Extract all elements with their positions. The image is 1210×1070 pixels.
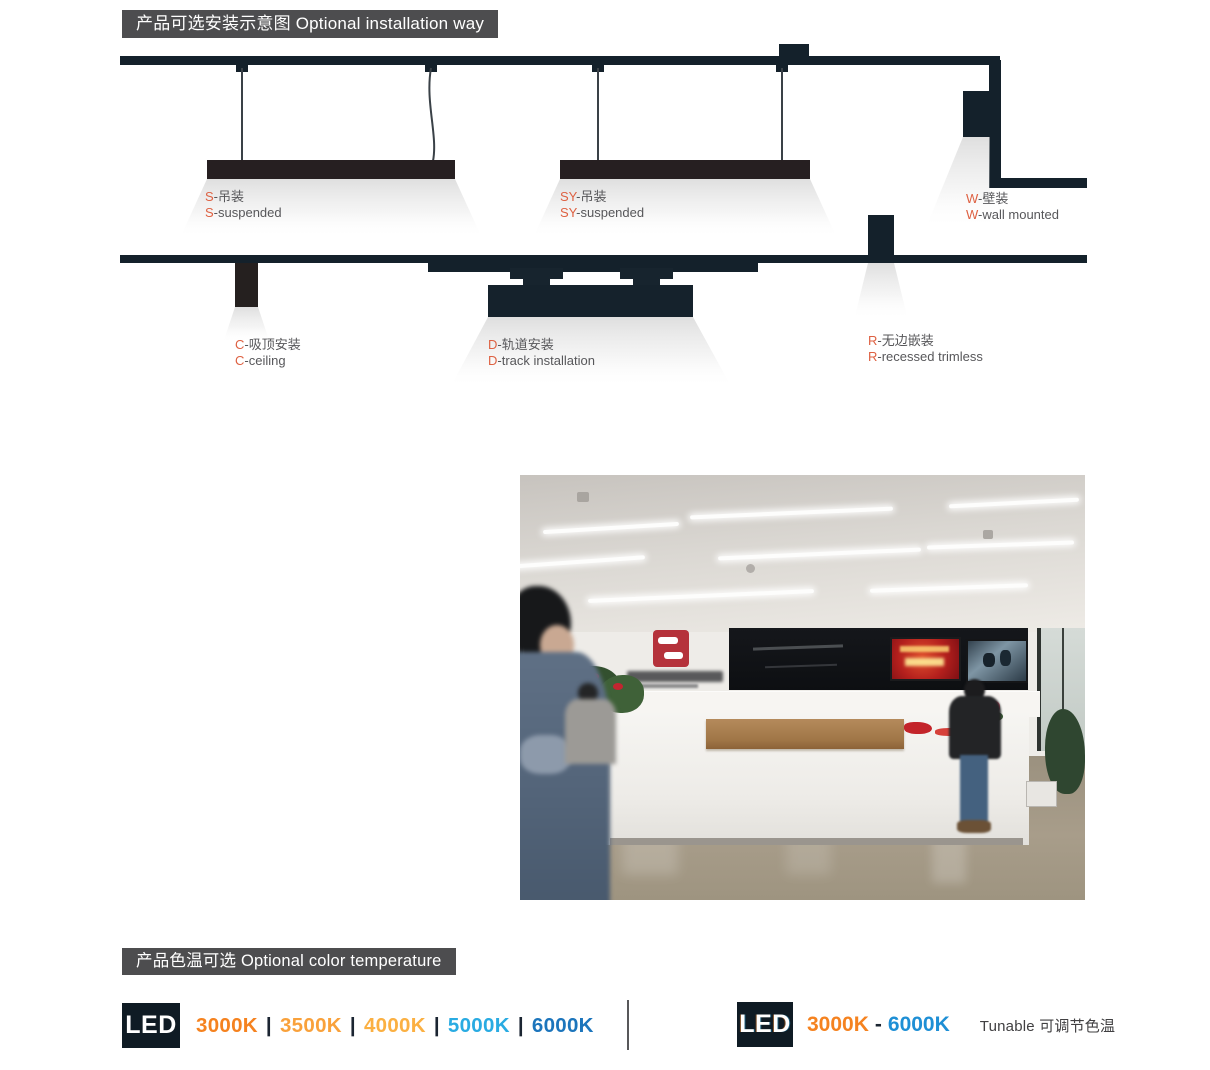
label-c-ceiling: C-吸顶安装 C-ceiling <box>235 337 301 368</box>
tv-screen-red <box>890 637 961 682</box>
fixture-s-suspended <box>207 160 455 179</box>
label-d-track: D-轨道安装 D-track installation <box>488 337 595 368</box>
fixture-w-wall <box>963 91 990 137</box>
ceiling-vent <box>577 492 589 502</box>
temp-option-5000k: 5000K <box>448 1014 510 1037</box>
person-left-background <box>565 683 616 764</box>
label-sy-suspended: SY-吊装 SY-suspended <box>560 189 644 220</box>
track-adapter <box>510 268 563 279</box>
power-cord <box>429 68 434 161</box>
ceiling-vent <box>983 530 993 539</box>
wall-bar <box>989 60 1001 188</box>
sign-text-blur <box>627 671 723 682</box>
temp-option-6000k: 6000K <box>532 1014 594 1037</box>
fixture-d-track <box>488 285 693 317</box>
temp-option-3000k: 3000K <box>196 1014 258 1037</box>
screen-figure <box>983 653 995 667</box>
desk-wood-accent <box>706 719 904 749</box>
fixture-c-ceiling <box>235 263 258 307</box>
label-r-recessed: R-无边嵌装 R-recessed trimless <box>868 333 983 364</box>
tunable-from: 3000K <box>807 1013 869 1036</box>
color-temperature-section-header: 产品色温可选 Optional color temperature <box>122 948 456 975</box>
option-separator: | <box>350 1014 356 1037</box>
person-jeans <box>960 755 989 821</box>
ceiling-bar-top <box>120 56 1000 65</box>
tunable-to: 6000K <box>888 1013 950 1036</box>
fixture-sy-suspended <box>560 160 810 179</box>
temp-option-4000k: 4000K <box>364 1014 426 1037</box>
wall-floor-step <box>999 178 1087 188</box>
ceiling-junction-box <box>779 44 809 57</box>
company-logo <box>653 630 689 667</box>
tv-screen-blue <box>966 639 1028 684</box>
white-box <box>1026 781 1057 807</box>
fixture-r-recessed <box>868 215 894 259</box>
person-right <box>944 679 1006 845</box>
screen-text-glow <box>905 658 944 666</box>
temp-option-3500k: 3500K <box>280 1014 342 1037</box>
label-w-wall-mounted: W-壁装 W-wall mounted <box>966 191 1059 222</box>
track-adapter <box>620 268 673 279</box>
track-bar <box>428 263 758 272</box>
screen-figure <box>1000 650 1010 666</box>
logo-glyph <box>664 652 684 659</box>
label-s-suspended: S-吊装 S-suspended <box>205 189 282 220</box>
track-adapter-foot <box>633 279 660 285</box>
option-separator: | <box>266 1014 272 1037</box>
screen-text-glow <box>900 646 949 652</box>
application-photo <box>520 475 1085 900</box>
band-reflection <box>765 664 837 669</box>
vertical-divider <box>627 1000 629 1050</box>
led-badge: LED <box>122 1003 180 1048</box>
person-jacket <box>949 696 1001 759</box>
ceiling-bar-bottom <box>120 255 1087 263</box>
light-beam-r <box>854 263 908 320</box>
person-body <box>565 699 616 764</box>
range-dash: - <box>875 1013 882 1036</box>
tunable-note: Tunable 可调节色温 <box>980 1018 1115 1035</box>
person-shoes <box>957 820 991 833</box>
track-adapter-foot <box>523 279 550 285</box>
logo-glyph <box>658 637 678 644</box>
jacket-highlight <box>520 735 571 775</box>
led-badge-tunable: LED <box>737 1002 793 1047</box>
option-separator: | <box>518 1014 524 1037</box>
datasheet-page: 产品可选安装示意图 Optional installation way <box>0 0 1210 1070</box>
band-reflection <box>753 645 843 651</box>
tunable-range: 3000K-6000KTunable 可调节色温 <box>807 1002 1115 1047</box>
color-temperature-options: 3000K|3500K|4000K|5000K|6000K <box>196 1003 594 1048</box>
red-decoration <box>904 722 932 735</box>
option-separator: | <box>434 1014 440 1037</box>
